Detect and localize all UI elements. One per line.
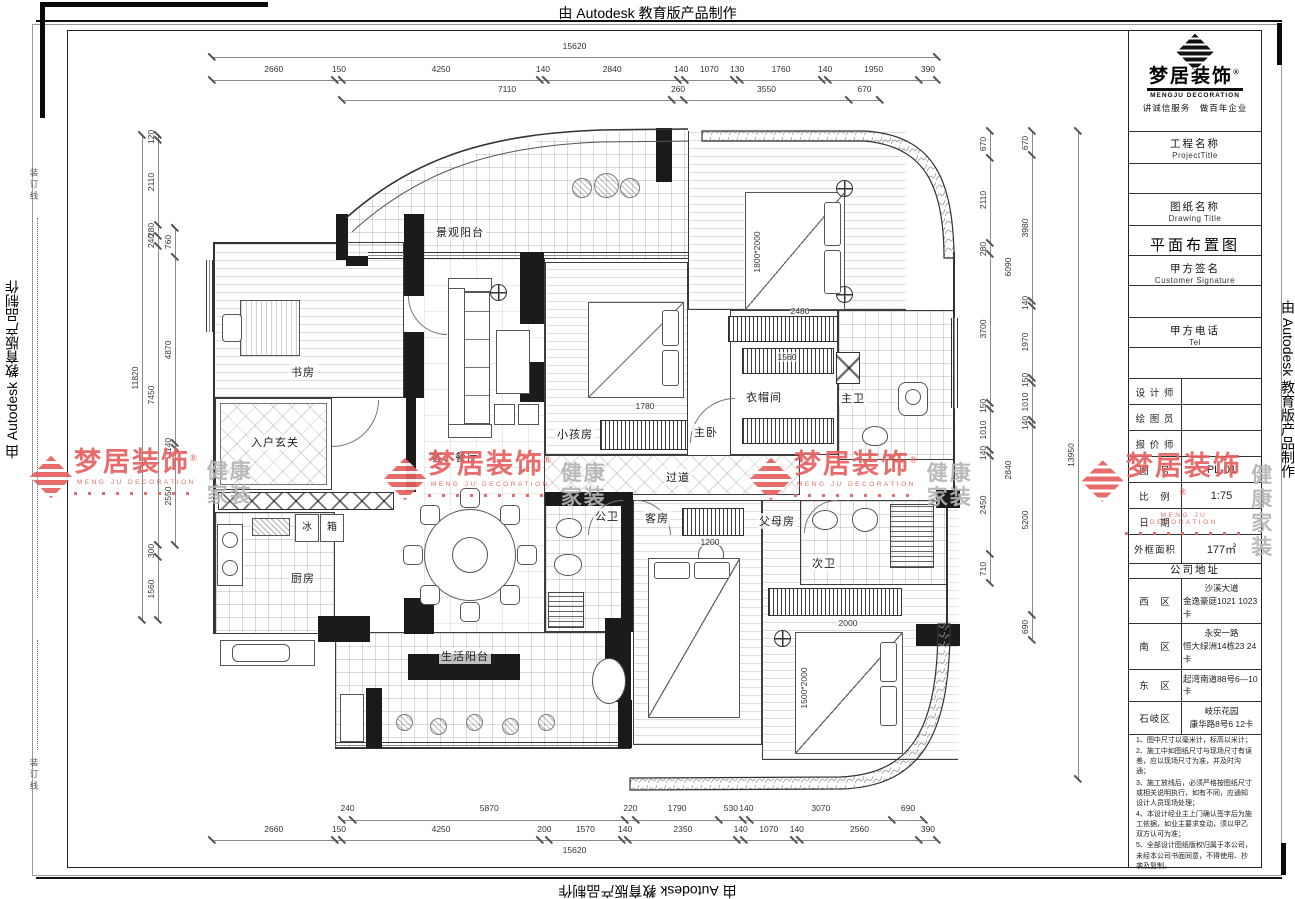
shower — [548, 592, 584, 628]
closet-wardrobe — [728, 316, 838, 342]
sofa-arm-bottom — [448, 424, 492, 438]
dim-label: 670 — [857, 84, 871, 94]
tb-row-label: 日 期 — [1129, 509, 1182, 534]
tb-row-label: 图 号 — [1129, 457, 1182, 482]
toilet — [554, 554, 582, 576]
dim-label: 2110 — [146, 173, 156, 191]
tb-address-row: 西 区沙溪大道金逸豪庭1021 1023卡 — [1129, 579, 1261, 624]
customer-signature-value — [1129, 286, 1261, 318]
dim-label: 150 — [978, 399, 988, 413]
laundry-sink — [592, 658, 626, 704]
ceiling-light-icon — [490, 284, 507, 301]
dim-label: 2110 — [978, 191, 988, 209]
dim-label: 1010 — [1020, 392, 1030, 411]
dim-label: 690 — [1020, 620, 1030, 634]
dim-label: 140 — [536, 64, 550, 74]
sofa-seat — [464, 292, 490, 424]
closet-wardrobe — [742, 418, 834, 444]
room-label: 次卫 — [810, 555, 838, 571]
binding-dotted-line-2 — [37, 640, 38, 750]
dim-label: 7110 — [498, 84, 516, 94]
dim-label: 3700 — [978, 319, 988, 338]
tb-row: 日 期 — [1129, 509, 1261, 535]
dim-label: 4250 — [432, 824, 451, 834]
dim-label: 1790 — [668, 803, 687, 813]
title-block-logo: 梦居装饰® MENGJU DECORATION 讲诚信服务 做百年企业 — [1129, 31, 1261, 132]
dim-label: 150 — [332, 824, 346, 834]
interior-dim: 1200 — [701, 537, 720, 547]
room-label: 客房 — [643, 510, 671, 526]
dim-label: 140 — [674, 64, 688, 74]
dining-chair — [460, 602, 480, 622]
dim-label: 7450 — [146, 386, 156, 405]
interior-dim: 1560 — [778, 352, 797, 362]
dim-label: 530 — [724, 803, 738, 813]
crop-mark-top — [40, 2, 268, 7]
dim-label: 6090 — [1003, 258, 1013, 277]
dining-chair — [500, 585, 520, 605]
dim-label: 150 — [332, 64, 346, 74]
bed-size-label: 1500*2000 — [799, 667, 809, 708]
dim-label: 130 — [730, 64, 744, 74]
dining-chair — [517, 545, 537, 565]
window-study — [206, 260, 213, 332]
field-label: 图纸名称 — [1129, 194, 1261, 214]
dim-label: 150 — [1020, 373, 1030, 387]
banner-rule-top — [36, 20, 1282, 22]
tb-row-value: 1:75 — [1182, 490, 1261, 502]
dim-label: 2840 — [1003, 461, 1013, 480]
stool — [518, 404, 539, 425]
binding-dotted-line — [37, 218, 38, 598]
dim-label: 2450 — [978, 496, 988, 515]
toilet — [862, 426, 888, 446]
dim-label: 220 — [623, 803, 637, 813]
dim-label: 1950 — [864, 64, 883, 74]
field-label: 甲方电话 — [1129, 318, 1261, 338]
dim-label: 140 — [1020, 415, 1030, 429]
dim-label: 140 — [739, 803, 753, 813]
dim-label: 15620 — [563, 845, 587, 855]
kitchen-appliance — [252, 518, 290, 536]
dining-chair — [420, 585, 440, 605]
dim-label: 140 — [818, 64, 832, 74]
dim-label: 390 — [921, 64, 935, 74]
dim-label: 1010 — [978, 420, 988, 439]
room-label: 过道 — [664, 469, 692, 485]
crop-mark-right-bottom — [1281, 843, 1286, 875]
tb-note: 1、图中尺寸以毫米计，标高以米计； — [1136, 736, 1254, 746]
room-label: 客、餐厅 — [429, 449, 481, 465]
dim-label: 710 — [978, 562, 988, 576]
dim-label: 200 — [537, 824, 551, 834]
study-chair — [222, 314, 242, 342]
foyer-cabinet — [218, 492, 394, 510]
dim-label: 2560 — [850, 824, 869, 834]
ceiling-light-icon — [774, 630, 791, 647]
dim-label: 1560 — [146, 579, 156, 598]
room-label: 书房 — [289, 364, 317, 380]
room-label: 父母房 — [757, 513, 797, 529]
tb-address-row: 东 区起湾南道88号6—10卡 — [1129, 670, 1261, 703]
dim-label: 260 — [671, 84, 685, 94]
dim-label: 140 — [1020, 296, 1030, 310]
tb-row-value: PL-01 — [1182, 464, 1261, 476]
burner — [222, 532, 238, 548]
kids-wardrobe — [600, 420, 688, 450]
tb-row-value: 177㎡ — [1182, 541, 1261, 557]
dining-chair — [420, 505, 440, 525]
tb-row-label: 比 例 — [1129, 483, 1182, 508]
autodesk-banner-left: 由 Autodesk 教育版产品制作 — [2, 280, 22, 458]
master-bath-basin — [905, 389, 921, 405]
interior-dim: 2480 — [791, 306, 810, 316]
tb-note: 5、全部设计图纸版权归属于本公司，未经本公司书面同意，不得使用、抄袭及复制。 — [1136, 841, 1254, 871]
toilet — [852, 508, 878, 532]
dim-label: 140 — [163, 438, 173, 452]
room-label: 小孩房 — [555, 426, 595, 442]
room-label: 衣帽间 — [744, 389, 784, 405]
dim-label: 3070 — [811, 803, 830, 813]
dim-label: 1970 — [1020, 332, 1030, 351]
dim-label: 2550 — [163, 487, 173, 506]
bed-size-label: 1800*2000 — [752, 231, 762, 272]
binding-line-label-bottom: 装订线 — [28, 758, 40, 793]
dim-label: 140 — [734, 824, 748, 834]
dim-label: 1760 — [772, 64, 791, 74]
dim-label: 240 — [146, 234, 156, 248]
tb-row-label: 报 价 师 — [1129, 431, 1182, 456]
tb-note: 2、施工中如图纸尺寸与现场尺寸有误差，应以现场尺寸为准，并及时沟通； — [1136, 747, 1254, 777]
dim-label: 690 — [901, 803, 915, 813]
dim-label: 140 — [618, 824, 632, 834]
dining-chair — [500, 505, 520, 525]
room-label: 主卫 — [839, 390, 867, 406]
dim-label: 390 — [921, 824, 935, 834]
dim-label: 1070 — [759, 824, 778, 834]
dim-label: 5200 — [1020, 510, 1030, 529]
shower — [890, 504, 934, 568]
title-block: 梦居装饰® MENGJU DECORATION 讲诚信服务 做百年企业 工程名称… — [1128, 30, 1262, 868]
dim-label: 1570 — [576, 824, 595, 834]
dim-label: 11820 — [130, 366, 140, 389]
tb-row: 绘 图 员 — [1129, 405, 1261, 431]
dim-label: 300 — [146, 544, 156, 558]
dim-label: 140 — [978, 446, 988, 460]
address-header: 公司地址 — [1129, 559, 1261, 577]
project-title-value — [1129, 164, 1261, 194]
title-block-notes: 1、图中尺寸以毫米计，标高以米计；2、施工中如图纸尺寸与现场尺寸有误差，应以现场… — [1129, 728, 1261, 867]
room-label: 入户玄关 — [249, 434, 301, 450]
tb-row: 设 计 师 — [1129, 379, 1261, 405]
crop-mark-left — [40, 2, 45, 118]
room-label: 生活阳台 — [439, 648, 491, 664]
dim-label: 120 — [146, 130, 156, 144]
dim-label: 240 — [340, 803, 354, 813]
closet-column — [836, 352, 860, 384]
dim-label: 5870 — [480, 803, 499, 813]
autodesk-banner-bottom: 由 Autodesk 教育版产品制作 — [0, 881, 1295, 899]
tb-row-label: 设 计 师 — [1129, 379, 1182, 404]
study-desk — [240, 300, 300, 356]
room-label: 公卫 — [593, 508, 621, 524]
dim-label: 2660 — [264, 824, 283, 834]
dim-label: 2350 — [673, 824, 692, 834]
room-label: 景观阳台 — [434, 224, 486, 240]
title-block-rows: 设 计 师绘 图 员报 价 师图 号PL-01比 例1:75日 期外框面积177… — [1129, 379, 1261, 564]
field-label: 工程名称 — [1129, 131, 1261, 151]
kitchen-sink — [232, 644, 290, 662]
title-block-addresses: 西 区沙溪大道金逸豪庭1021 1023卡南 区永安一路恒大绿洲14栋23 24… — [1129, 579, 1261, 735]
dim-label: 1070 — [700, 64, 719, 74]
tb-address-row: 南 区永安一路恒大绿洲14栋23 24卡 — [1129, 624, 1261, 669]
washing-machine — [340, 694, 364, 742]
room-label: 主卧 — [692, 424, 720, 440]
dim-label: 280 — [978, 242, 988, 256]
cad-floorplan-page: 由 Autodesk 教育版产品制作 由 Autodesk 教育版产品制作 由 … — [0, 0, 1295, 899]
dim-label: 4870 — [163, 340, 173, 359]
dim-label: 2660 — [264, 64, 283, 74]
tb-row: 比 例1:75 — [1129, 483, 1261, 509]
tb-row: 图 号PL-01 — [1129, 457, 1261, 483]
dim-label: 4250 — [432, 64, 451, 74]
dining-table-center — [452, 537, 488, 573]
mengju-logo-icon — [1177, 34, 1214, 71]
public-bath-basin — [556, 518, 582, 538]
window-master-bath — [951, 318, 958, 408]
binding-line-label-top: 装订线 — [28, 168, 40, 203]
autodesk-banner-right: 由 Autodesk 教育版产品制作 — [1278, 300, 1295, 478]
dining-chair — [403, 545, 423, 565]
tb-row: 报 价 师 — [1129, 431, 1261, 457]
coffee-table — [496, 330, 530, 394]
tb-note: 4、本设计经业主上门确认签字后为施工依据，如业主要求变动，须以甲乙双方认可为准； — [1136, 810, 1254, 840]
dim-label: 140 — [790, 824, 804, 834]
dim-label: 760 — [163, 235, 173, 249]
room-label: 厨房 — [289, 570, 317, 586]
crop-mark-right-top — [1277, 23, 1282, 65]
dim-label: 13950 — [1066, 443, 1076, 467]
tb-note: 3、施工放线后，必须严格按图纸尺寸或相关说明执行，如有不同，应通知设计人员现场处… — [1136, 779, 1254, 809]
guest-wardrobe — [682, 508, 744, 536]
dining-chair — [460, 488, 480, 508]
parents-wardrobe — [768, 588, 902, 616]
stool — [494, 404, 515, 425]
burner — [222, 560, 238, 576]
tb-row-label: 绘 图 员 — [1129, 405, 1182, 430]
dim-label: 670 — [1020, 136, 1030, 150]
field-label: 甲方签名 — [1129, 256, 1261, 276]
sofa-back — [448, 288, 465, 430]
banner-rule-bottom — [36, 877, 1282, 879]
tel-value — [1129, 348, 1261, 379]
interior-dim: 2000 — [839, 618, 858, 628]
dim-label: 3550 — [757, 84, 776, 94]
dim-label: 15620 — [563, 41, 587, 51]
fridge-right-box: 箱 — [320, 514, 344, 542]
dim-label: 670 — [978, 137, 988, 151]
fridge-left-box: 冰 — [295, 514, 319, 542]
dim-label: 3980 — [1020, 219, 1030, 238]
interior-dim: 1780 — [636, 401, 655, 411]
dim-label: 2840 — [603, 64, 622, 74]
drawing-title-value: 平面布置图 — [1129, 226, 1261, 256]
